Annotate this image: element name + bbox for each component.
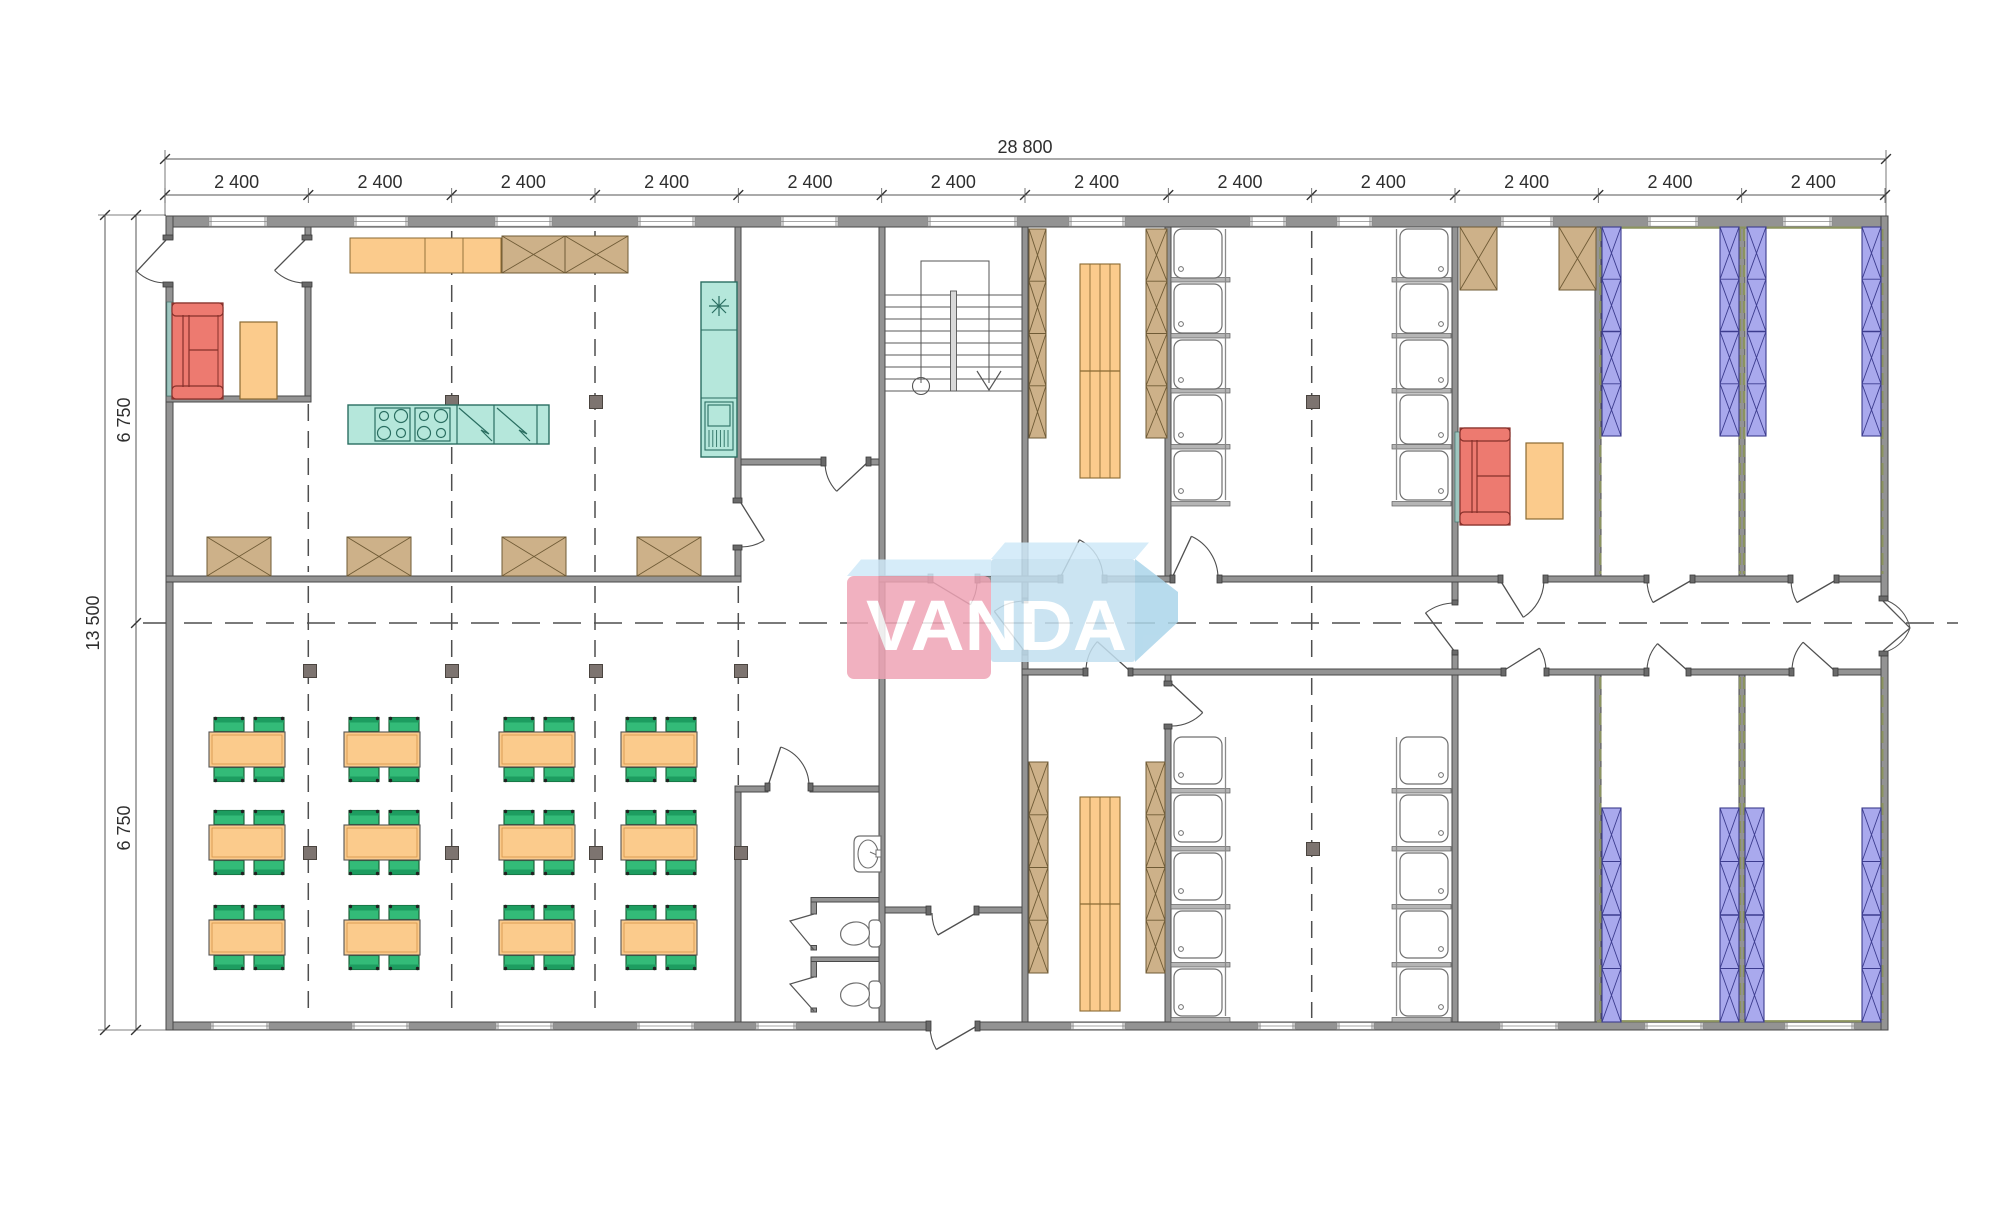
svg-text:6 750: 6 750: [114, 805, 134, 850]
svg-text:13 500: 13 500: [83, 595, 103, 650]
svg-text:2 400: 2 400: [931, 172, 976, 192]
svg-text:2 400: 2 400: [1791, 172, 1836, 192]
svg-text:2 400: 2 400: [1361, 172, 1406, 192]
svg-text:2 400: 2 400: [357, 172, 402, 192]
svg-text:6 750: 6 750: [114, 397, 134, 442]
svg-text:2 400: 2 400: [1647, 172, 1692, 192]
svg-text:2 400: 2 400: [214, 172, 259, 192]
svg-text:2 400: 2 400: [1217, 172, 1262, 192]
svg-text:2 400: 2 400: [1504, 172, 1549, 192]
svg-text:2 400: 2 400: [501, 172, 546, 192]
svg-text:2 400: 2 400: [787, 172, 832, 192]
svg-text:2 400: 2 400: [644, 172, 689, 192]
svg-text:2 400: 2 400: [1074, 172, 1119, 192]
svg-text:28 800: 28 800: [997, 137, 1052, 157]
svg-text:VANDA: VANDA: [866, 587, 1127, 666]
